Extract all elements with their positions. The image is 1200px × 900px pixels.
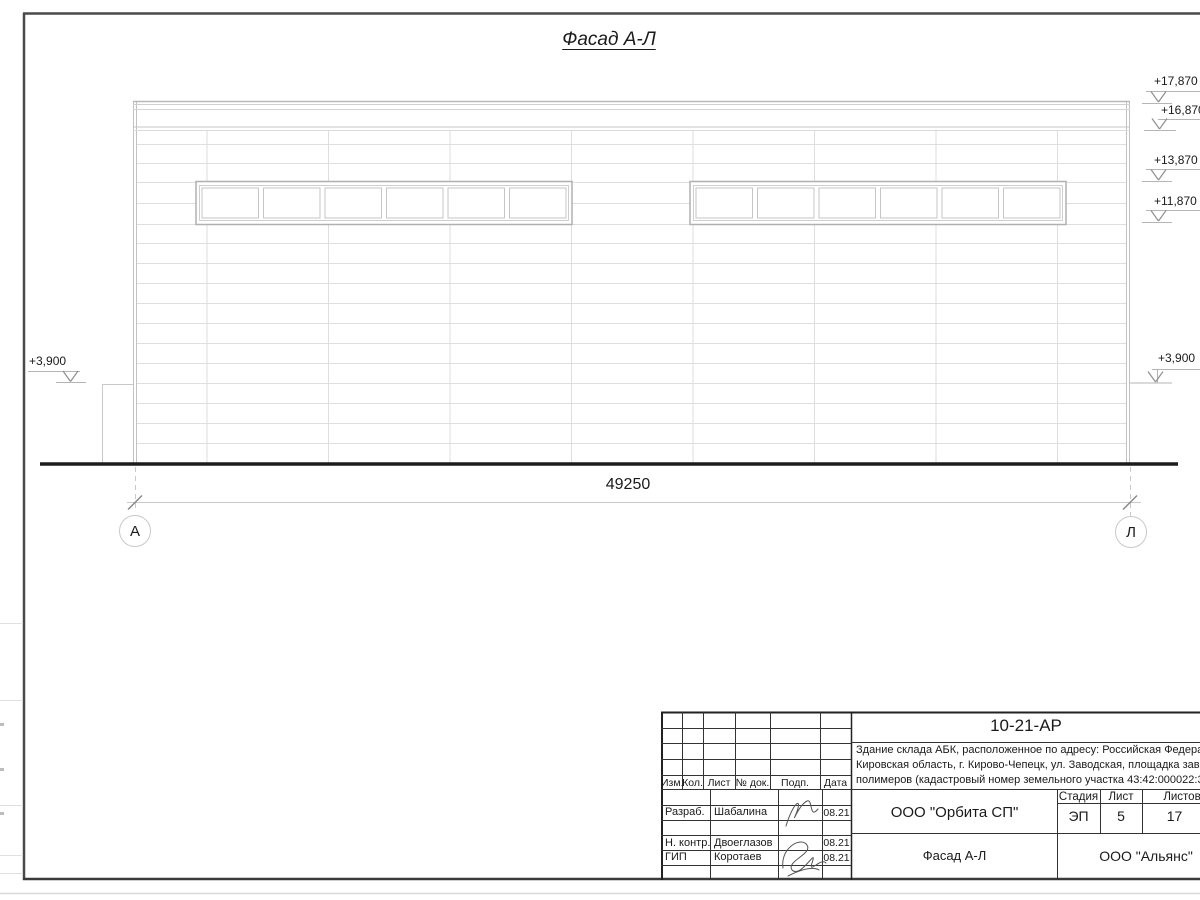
axis-bubble-l: Л	[1116, 524, 1146, 541]
signature-razrab	[786, 801, 818, 826]
elevation-mark-icon	[1159, 92, 1167, 103]
titleblock-col-list: Лист	[703, 777, 735, 789]
elevation-label-3900-right: +3,900	[1158, 352, 1195, 366]
titleblock-description-line3: полимеров (кадастровый номер земельного …	[856, 774, 1200, 787]
titleblock-date-nkontr: 08.21	[822, 837, 851, 849]
drawing-sheet: { "colors": { "ink": "#1a1a1a", "line_li…	[0, 0, 1200, 900]
margin-stamp-mark	[0, 768, 4, 771]
elevation-label-13870: +13,870	[1154, 154, 1198, 168]
elevation-mark-icon	[1159, 170, 1167, 181]
margin-stamp-mark	[0, 812, 4, 815]
elevation-label-17870: +17,870	[1154, 75, 1198, 89]
titleblock-sheet-number: 5	[1100, 808, 1142, 824]
titleblock-description-line2: Кировская область, г. Кирово-Чепецк, ул.…	[856, 759, 1200, 772]
elevation-mark-icon	[1160, 119, 1168, 130]
facade-title: Фасад А-Л	[459, 29, 759, 51]
titleblock-col-kol: Кол.	[682, 777, 703, 789]
elevation-mark-icon	[63, 371, 71, 382]
titleblock-date-razrab: 08.21	[822, 807, 851, 819]
titleblock-stage-label: Стадия	[1057, 791, 1100, 804]
titleblock-col-data: Дата	[820, 777, 851, 789]
titleblock-name-razrab: Шабалина	[714, 806, 767, 819]
titleblock-name-gip: Коротаев	[714, 851, 762, 864]
titleblock-sheets-total: 17	[1142, 808, 1200, 824]
margin-stamp-mark	[0, 723, 4, 726]
elevation-mark-icon	[1152, 119, 1160, 130]
titleblock-company: ООО "Орбита СП"	[852, 804, 1057, 821]
elevation-mark-icon	[1148, 372, 1156, 383]
titleblock-sheets-label: Листов	[1142, 791, 1200, 804]
titleblock-stage-value: ЭП	[1057, 808, 1100, 824]
titleblock-sheet-label: Лист	[1100, 791, 1142, 804]
titleblock-description-line1: Здание склада АБК, расположенное по адре…	[856, 744, 1200, 757]
titleblock-doc-number: 10-21-АР	[852, 716, 1200, 736]
titleblock-role-razrab: Разраб.	[665, 806, 705, 819]
titleblock-date-gip: 08.21	[822, 852, 851, 864]
elevation-mark-icon	[1151, 92, 1159, 103]
elevation-label-11870: +11,870	[1154, 195, 1197, 209]
titleblock-role-nkontr: Н. контр.	[665, 837, 710, 850]
elevation-label-3900-left: +3,900	[29, 355, 66, 369]
signature-nkontr-gip	[783, 842, 826, 876]
dimension-total: 49250	[528, 476, 728, 494]
elevation-label-16870: +16,870	[1161, 104, 1200, 118]
elevation-mark-icon	[71, 371, 79, 382]
titleblock-col-izm: Изм.	[661, 777, 682, 789]
titleblock-drawing-name: Фасад А-Л	[852, 849, 1057, 864]
elevation-mark-icon	[1151, 211, 1159, 222]
elevation-mark-icon	[1159, 211, 1167, 222]
titleblock-role-gip: ГИП	[665, 851, 687, 864]
titleblock-col-podp: Подп.	[770, 777, 820, 789]
elevation-mark-icon	[1156, 372, 1164, 383]
titleblock-contractor: ООО "Альянс"	[1057, 848, 1200, 864]
titleblock-col-doc: № док.	[735, 777, 770, 789]
titleblock-name-nkontr: Двоеглазов	[714, 837, 772, 850]
axis-bubble-a: А	[120, 523, 150, 540]
elevation-mark-icon	[1151, 170, 1159, 181]
